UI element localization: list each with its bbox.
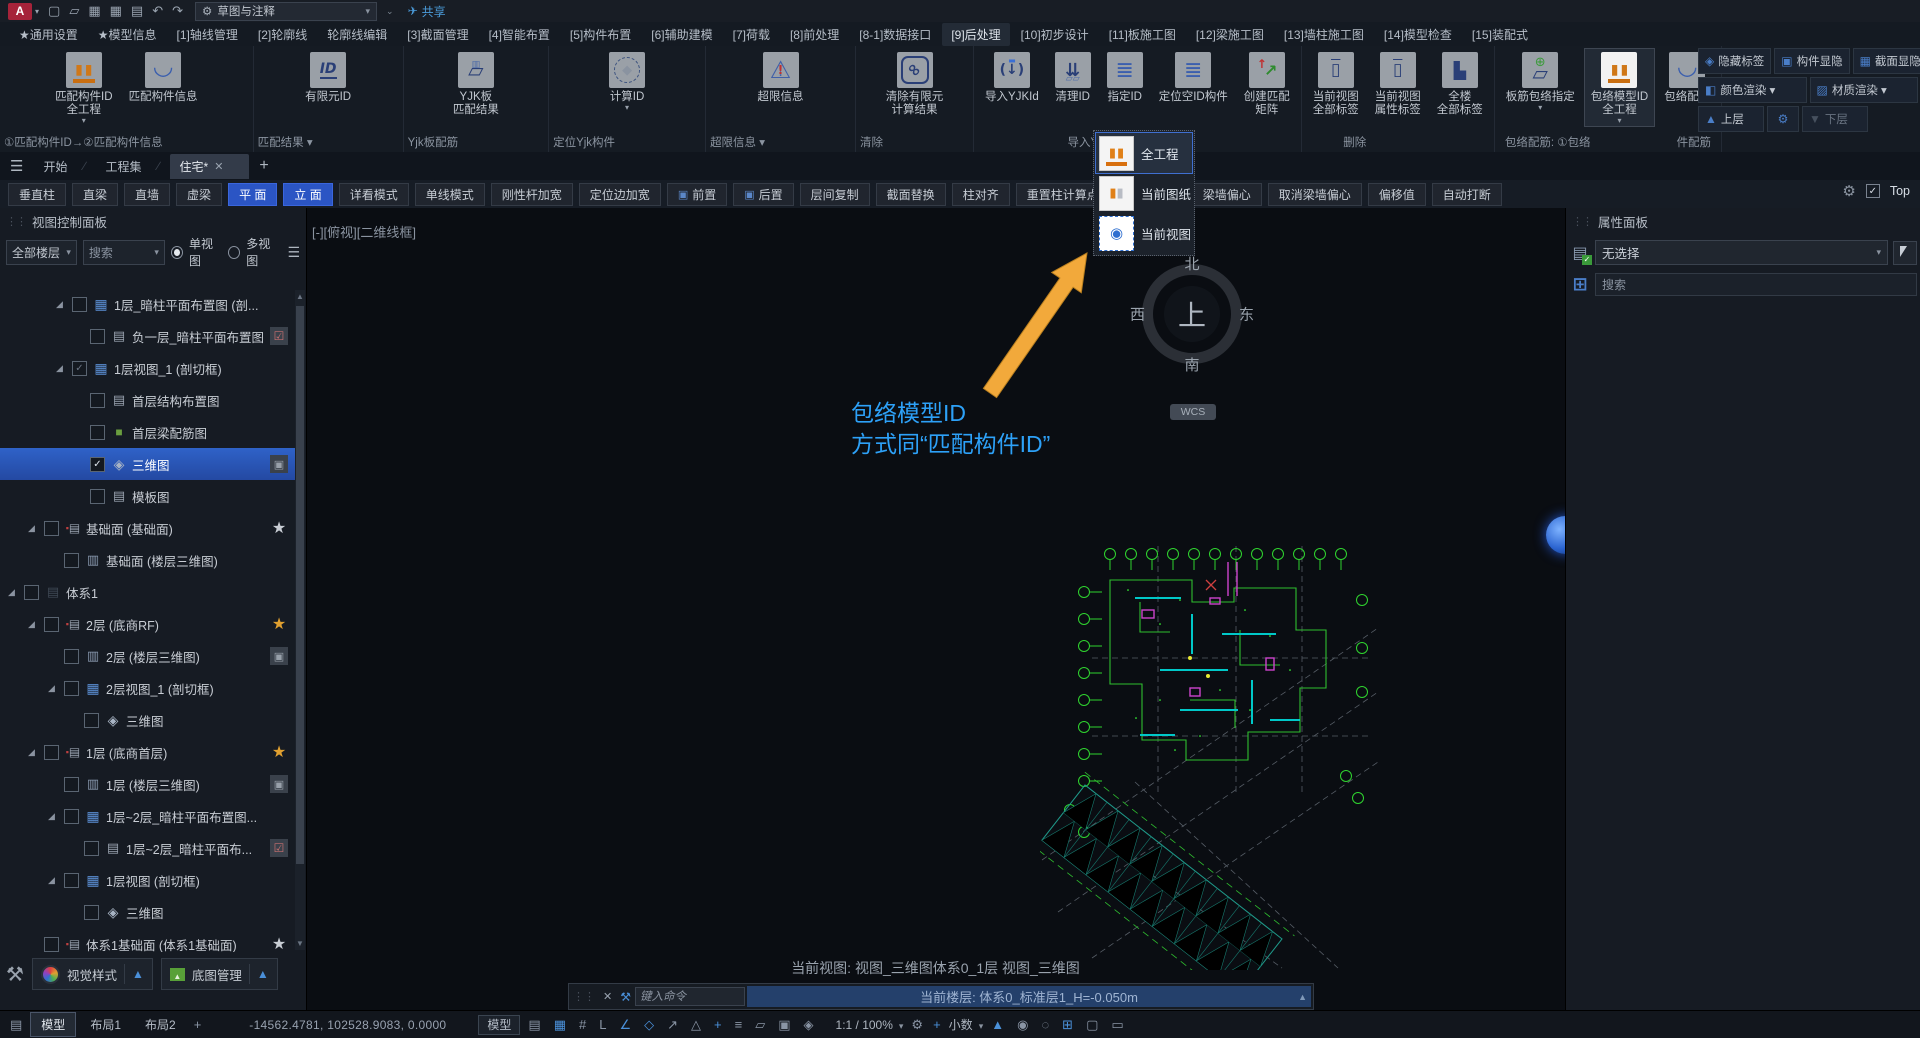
layout-tab[interactable]: 布局2 (135, 1013, 186, 1036)
paper-model-toggle-icon[interactable]: ▤ (526, 1017, 542, 1033)
ribbon-button-label: 定位空ID构件 (1159, 91, 1228, 104)
tree-item-badge[interactable] (270, 519, 288, 537)
tree-row[interactable]: ◢ 1层_暗柱平面布置图 (剖... (0, 288, 296, 320)
top-checkbox[interactable] (1866, 184, 1880, 198)
tree-item-icon (104, 840, 122, 856)
tree-row[interactable]: ◢ 1层~2层_暗柱平面布置图... (0, 800, 296, 832)
ribbon-button[interactable]: 匹配构件信息 ▾ (122, 48, 205, 106)
tree-menu-icon[interactable]: ☰ (287, 244, 300, 261)
isolate-objects-icon[interactable]: ◌ (1039, 1017, 1051, 1032)
tree-checkbox[interactable] (44, 745, 59, 760)
expander-icon[interactable]: ◢ (28, 523, 44, 534)
ribbon-button-icon (1055, 52, 1091, 88)
view-display-controls: ◈ 隐藏标签 ▣ 构件显隐 ▦ 截面显隐 ◧ 颜色渲染 ▾ ▨ 材质渲染 ▾ (1698, 48, 1918, 148)
toolbar-button[interactable]: 立 面 (283, 183, 332, 206)
ribbon-button[interactable]: 创建匹配 矩阵 ▾ (1237, 48, 1297, 119)
floor-filter-select[interactable]: 全部楼层 (6, 240, 77, 265)
panel-grip-icon[interactable]: ⋮⋮ (1572, 215, 1592, 228)
tree-row[interactable]: ◢ 首层结构布置图 (0, 384, 296, 416)
share-icon: ✈ (408, 4, 418, 18)
visual-style-expand-icon[interactable]: ▲ (132, 967, 144, 981)
toolbar-button[interactable]: 取消梁墙偏心 (1268, 183, 1362, 206)
dropdown-item[interactable]: 全工程 (1096, 133, 1192, 173)
navigation-compass[interactable]: 北 南 西 东 上 (1134, 256, 1250, 372)
ribbon-button[interactable]: 有限元ID ▾ (298, 48, 358, 106)
layer-nav-row: ▲ 上层 ⚙ ▼ 下层 (1698, 106, 1918, 132)
compass-top-label: 上 (1178, 294, 1206, 334)
commandbar-customize-icon[interactable]: ⚒ (616, 990, 635, 1004)
tree-item-badge[interactable] (270, 711, 288, 729)
ribbon-tab[interactable]: ★模型信息 (89, 23, 166, 46)
tree-checkbox[interactable] (64, 681, 79, 696)
up-arrow-icon: ▲ (1705, 112, 1717, 126)
ribbon-button-label: 当前视图 全部标签 (1313, 91, 1359, 117)
button-divider (124, 964, 125, 984)
polar-tracking-icon[interactable]: ∠ (617, 1017, 633, 1033)
ribbon-group: 当前视图 全部标签 ▾ 当前视图 属性标签 ▾ 全楼 全部标签 ▾ (1302, 46, 1495, 152)
share-label: 共享 (422, 3, 446, 20)
visual-style-button[interactable]: 视觉样式 ▲ (32, 958, 153, 990)
tree-item-icon (84, 552, 102, 568)
dropdown-item-label: 当前图纸 (1141, 184, 1191, 203)
document-tab[interactable]: 开始 ✕ (33, 154, 95, 179)
save-icon[interactable]: ▦ (88, 3, 100, 19)
tree-checkbox[interactable] (44, 521, 59, 536)
tree-item-badge[interactable] (270, 679, 288, 697)
customization-icon[interactable]: ▭ (1109, 1017, 1125, 1033)
tree-item-badge[interactable] (270, 871, 288, 889)
viewport-controls-label[interactable]: [-][俯视][二维线框] (312, 222, 416, 241)
workspace-collapse-icon[interactable]: ⌄ (386, 6, 394, 17)
plan-highlight-dots (1188, 656, 1210, 678)
ribbon-button[interactable]: 超限信息 ▾ (751, 48, 811, 106)
tree-item-label: 三维图 (126, 903, 164, 922)
tree-item-badge[interactable] (270, 935, 288, 952)
tree-checkbox[interactable] (72, 361, 87, 376)
ortho-mode-icon[interactable]: L (597, 1017, 608, 1032)
navigation-ball-icon[interactable] (1546, 516, 1565, 554)
ribbon-tab[interactable]: [9]后处理 (942, 23, 1009, 46)
tree-checkbox[interactable] (64, 553, 79, 568)
tree-checkbox[interactable] (44, 937, 59, 952)
ribbon-tab[interactable]: [6]辅助建模 (642, 23, 721, 46)
commandbar-close-icon[interactable]: ✕ (599, 990, 616, 1003)
tree-item-badge[interactable] (270, 775, 288, 793)
toolbar-button[interactable]: 刚性杆加宽 (491, 183, 573, 206)
new-layout-icon[interactable]: + (192, 1017, 204, 1032)
tree-row[interactable]: ◢ 1层 (楼层三维图) (0, 768, 296, 800)
scroll-up-icon[interactable]: ▲ (295, 292, 305, 301)
lower-layer-label: 下层 (1825, 111, 1848, 127)
tree-checkbox[interactable] (90, 457, 105, 472)
base-map-label: 底图管理 (192, 965, 242, 984)
ribbon-group-label: 包络配筋: ①包络 件配筋 (1499, 132, 1718, 152)
tree-row[interactable]: ◢ 负一层_暗柱平面布置图 (0, 320, 296, 352)
tree-checkbox[interactable] (64, 649, 79, 664)
units-value[interactable]: 小数 (949, 1016, 984, 1033)
dynamic-ucs-icon[interactable]: △ (689, 1017, 703, 1033)
layer-settings-button[interactable]: ⚙ (1767, 106, 1799, 132)
ribbon-button[interactable]: 匹配构件ID 全工程 ▾ (48, 48, 120, 127)
ribbon-button-dropdown-icon[interactable]: ▾ (1617, 117, 1621, 125)
tree-row[interactable]: ◢ 模板图 (0, 480, 296, 512)
tree-item-badge[interactable] (270, 903, 288, 921)
tab-close-icon[interactable]: ✕ (214, 160, 223, 173)
expander-icon[interactable]: ◢ (8, 587, 24, 598)
tree-search-placeholder: 搜索 (89, 244, 113, 261)
toolbar-button[interactable]: 层间复制 (800, 183, 870, 206)
dropdown-item[interactable]: 当前视图 (1096, 213, 1192, 253)
ribbon-group-buttons: 导入YJKId ▾ 清理ID ▾ 指定ID ▾ (978, 48, 1297, 132)
scrollbar-thumb[interactable] (296, 306, 304, 864)
save-as-icon[interactable]: ▦ (110, 3, 122, 19)
ribbon-tab[interactable]: ★通用设置 (10, 23, 87, 46)
ribbon-tab[interactable]: [11]板施工图 (1100, 23, 1185, 46)
toolbar-button[interactable]: 前置 (667, 183, 727, 206)
ribbon-tab-bar: ★通用设置★模型信息[1]轴线管理[2]轮廓线轮廓线编辑[3]截面管理[4]智能… (0, 22, 1920, 46)
toolbar-button[interactable]: 柱对齐 (952, 183, 1010, 206)
toolbar-button[interactable]: 自动打断 (1432, 183, 1502, 206)
tree-checkbox[interactable] (90, 489, 105, 504)
open-folder-icon[interactable]: ▱ (69, 3, 79, 19)
commandbar-grip-icon[interactable]: ⋮⋮ (569, 990, 599, 1003)
ribbon-tab[interactable]: [7]荷载 (724, 23, 779, 46)
tree-row[interactable]: ◢ 2层 (楼层三维图) (0, 640, 296, 672)
right-panel-header[interactable]: ⋮⋮ 属性面板 (1566, 208, 1920, 234)
toolbar-button[interactable]: 垂直柱 (8, 183, 66, 206)
ribbon-tab[interactable]: [4]智能布置 (480, 23, 559, 46)
tree-row[interactable]: ◢ 三维图 (0, 448, 296, 480)
layout-tab[interactable]: 布局1 (80, 1013, 131, 1036)
base-map-expand-icon[interactable]: ▲ (257, 967, 269, 981)
ribbon-group-label-text: Yjk板配筋 (408, 134, 458, 150)
tree-row[interactable]: ◢ 2层视图_1 (剖切框) (0, 672, 296, 704)
statusbar-menu-icon[interactable]: ▤ (8, 1017, 24, 1033)
tree-item-badge[interactable] (270, 647, 288, 665)
transparency-icon[interactable]: ▱ (753, 1017, 767, 1033)
tree-row[interactable]: ◢ 三维图 (0, 896, 296, 928)
ribbon-button-label: 超限信息 (758, 91, 804, 104)
ribbon-tab[interactable]: [15]装配式 (1463, 23, 1537, 46)
tree-item-badge[interactable] (270, 391, 288, 409)
ribbon-group-buttons: YJK板 匹配结果 ▾ (408, 48, 544, 132)
tree-checkbox[interactable] (84, 841, 99, 856)
snap-tracking-icon[interactable]: ↗ (665, 1017, 680, 1033)
tree-item-icon (84, 872, 102, 889)
annotation-visibility-icon[interactable]: ▲ (989, 1017, 1006, 1032)
current-floor-status[interactable]: 当前楼层: 体系0_标准层1_H=-0.050m (747, 986, 1311, 1007)
left-panel-header[interactable]: ⋮⋮ 视图控制面板 (0, 208, 306, 234)
tree-row[interactable]: ◢ 三维图 (0, 704, 296, 736)
ribbon-button-dropdown-icon[interactable]: ▾ (82, 117, 86, 125)
toolbar-settings-gear-icon[interactable]: ⚙ (1842, 182, 1855, 200)
view-control-label: 截面显隐 (1875, 53, 1920, 69)
tree-item-badge[interactable] (270, 359, 288, 377)
tree-row[interactable]: ◢ 体系1基础面 (体系1基础面) (0, 928, 296, 952)
ribbon-group-buttons: 板筋包络指定 ▾ 包络模型ID 全工程 ▾ 包络配筋 ▾ (1499, 48, 1718, 132)
expander-icon[interactable]: ◢ (28, 619, 44, 630)
left-panel-title: 视图控制面板 (32, 212, 107, 231)
tree-item-badge[interactable] (270, 583, 288, 601)
ribbon-button-label: YJK板 匹配结果 (453, 91, 499, 117)
toolbar-button[interactable]: 偏移值 (1368, 183, 1426, 206)
tree-item-badge[interactable] (270, 487, 288, 505)
toolbar-button[interactable]: 虚梁 (176, 183, 222, 206)
toolbar-button[interactable]: 直梁 (72, 183, 118, 206)
clean-screen-icon[interactable]: ▢ (1084, 1017, 1100, 1033)
canvas-annotation: 包络模型ID 方式同“匹配构件ID” (851, 398, 1050, 460)
dropdown-item[interactable]: 当前图纸 (1096, 173, 1192, 213)
tree-checkbox[interactable] (64, 873, 79, 888)
new-tab-button[interactable]: + (259, 157, 268, 175)
plan-walls (1135, 598, 1300, 735)
ribbon-group-label-text: 包络配筋: ①包络 (1505, 134, 1591, 150)
ribbon-button-icon (1522, 52, 1558, 88)
tree-item-label: 负一层_暗柱平面布置图 (132, 327, 264, 346)
tree-row[interactable]: ◢ 1层~2层_暗柱平面布... (0, 832, 296, 864)
workspace-label: 草图与注释 (217, 3, 359, 19)
visual-style-label: 视觉样式 (67, 965, 117, 984)
ribbon-group-label-text: 超限信息 ▾ (710, 134, 765, 150)
panel-grip-icon[interactable]: ⋮⋮ (6, 215, 26, 228)
compass-north[interactable]: 北 (1184, 253, 1199, 274)
model-space-button[interactable]: 模型 (478, 1015, 520, 1035)
ribbon-tab[interactable]: [13]墙柱施工图 (1275, 23, 1373, 46)
ribbon-tab[interactable]: [8]前处理 (781, 23, 848, 46)
command-input[interactable] (635, 987, 745, 1006)
tree-item-badge[interactable] (270, 455, 288, 473)
annotation-monitor-icon[interactable]: ◉ (1015, 1017, 1030, 1033)
ribbon-tab[interactable]: [8-1]数据接口 (850, 23, 940, 46)
snap-mode-icon[interactable]: # (577, 1017, 588, 1032)
render-mode-button[interactable]: ▨ 材质渲染 ▾ (1810, 77, 1919, 103)
compass-east[interactable]: 东 (1239, 304, 1254, 325)
tree-item-icon (64, 521, 82, 535)
annotation-scale-value[interactable]: 1:1 / 100% (836, 1018, 904, 1032)
lower-layer-button[interactable]: ▼ 下层 (1802, 106, 1868, 132)
ribbon-tab[interactable]: [2]轮廓线 (249, 23, 316, 46)
toolbar-button[interactable]: 详看模式 (339, 183, 409, 206)
ribbon-tab[interactable]: [12]梁施工图 (1187, 23, 1273, 46)
property-grid-icon[interactable] (1570, 275, 1590, 295)
tree-scrollbar[interactable]: ▲ ▼ (295, 290, 305, 950)
right-panel-title: 属性面板 (1598, 212, 1648, 231)
expander-icon[interactable]: ◢ (56, 363, 72, 374)
ribbon-button-icon (310, 52, 346, 88)
left-panel-footer: ⚒ 视觉样式 ▲ ▲ 底图管理 ▲ (0, 952, 312, 996)
ribbon-button[interactable]: 包络模型ID 全工程 ▾ (1584, 48, 1656, 127)
ribbon-button[interactable]: 当前视图 全部标签 ▾ (1306, 48, 1366, 119)
tree-checkbox[interactable] (84, 713, 99, 728)
tree-item-badge[interactable] (270, 423, 288, 441)
expander-icon[interactable]: ◢ (28, 747, 44, 758)
hardware-acceleration-icon[interactable]: ⊞ (1060, 1017, 1075, 1033)
ribbon-tab[interactable]: 轮廓线编辑 (318, 23, 396, 46)
tree-row[interactable]: ◢ 2层 (底商RF) (0, 608, 296, 640)
ribbon-button[interactable]: 当前视图 属性标签 ▾ (1368, 48, 1428, 119)
compass-west[interactable]: 西 (1130, 304, 1145, 325)
undo-icon[interactable]: ↶ (152, 3, 163, 19)
ribbon-group-label-text: 匹配结果 ▾ (258, 134, 313, 150)
expander-icon[interactable]: ◢ (48, 875, 64, 886)
tree-item-badge[interactable] (270, 551, 288, 569)
ribbon-tab[interactable]: [1]轴线管理 (168, 23, 247, 46)
view-control-button[interactable]: ▦ 截面显隐 (1853, 48, 1920, 74)
layout-tabs: 模型布局1布局2 (30, 1012, 185, 1037)
ribbon-button-dropdown-icon[interactable]: ▾ (625, 104, 629, 112)
layout-tab[interactable]: 模型 (30, 1012, 76, 1037)
drawing-canvas[interactable]: [-][俯视][二维线框] 北 南 西 东 上 WCS 包络模型ID 方式同“匹… (306, 208, 1565, 1010)
tree-item-badge[interactable] (270, 327, 288, 345)
ribbon-group: YJK板 匹配结果 ▾ Yjk板配筋 (404, 46, 549, 152)
view-control-panel: ⋮⋮ 视图控制面板 全部楼层 搜索 单视图 多视图 ☰ ◢ 1层_暗柱平面布置图… (0, 208, 307, 1010)
ribbon-button-label: 创建匹配 矩阵 (1244, 91, 1290, 117)
ribbon-button[interactable]: YJK板 匹配结果 ▾ (446, 48, 506, 119)
tree-item-icon (64, 937, 82, 951)
pick-object-icon[interactable] (1893, 241, 1917, 265)
ribbon-button[interactable]: 板筋包络指定 ▾ (1499, 48, 1582, 114)
scroll-down-icon[interactable]: ▼ (295, 939, 305, 948)
multi-view-radio[interactable] (228, 246, 240, 259)
app-logo[interactable]: A (8, 3, 32, 20)
command-line-bar[interactable]: ⋮⋮ ✕ ⚒ 当前楼层: 体系0_标准层1_H=-0.050m (568, 983, 1314, 1010)
dropdown-item-icon (1099, 176, 1134, 211)
expander-icon[interactable]: ◢ (48, 811, 64, 822)
view-control-label: 隐藏标签 (1718, 53, 1764, 69)
tree-search-select[interactable]: 搜索 (83, 240, 165, 265)
object-snap-icon[interactable]: ◇ (642, 1017, 656, 1033)
ribbon-button[interactable]: 指定ID ▾ (1100, 48, 1150, 106)
tree-checkbox[interactable] (64, 809, 79, 824)
dynamic-input-icon[interactable]: + (712, 1017, 724, 1032)
3d-osnap-icon[interactable]: ◈ (802, 1017, 816, 1033)
ribbon-tab[interactable]: [14]模型检查 (1375, 23, 1461, 46)
base-map-button[interactable]: ▲ 底图管理 ▲ (161, 958, 278, 990)
toolbar-button[interactable]: 平 面 (228, 183, 277, 206)
scale-gear-icon[interactable]: ⚙ (909, 1017, 925, 1033)
toolbar-button[interactable]: 直墙 (124, 183, 170, 206)
share-button[interactable]: ✈ 共享 (408, 3, 446, 20)
ribbon-button-icon (1107, 52, 1143, 88)
properties-panel: ⋮⋮ 属性面板 无选择 (1565, 208, 1920, 1010)
ribbon-button-label: 指定ID (1107, 91, 1142, 104)
ribbon-button[interactable]: 清理ID ▾ (1048, 48, 1098, 106)
tree-item-badge[interactable] (270, 807, 288, 825)
new-file-icon[interactable]: ▢ (48, 3, 60, 19)
selection-cycling-icon[interactable]: ▣ (776, 1017, 792, 1033)
tree-row[interactable]: ◢ 基础面 (基础面) (0, 512, 296, 544)
tree-item-label: 1层视图_1 (剖切框) (114, 359, 222, 378)
tree-item-badge[interactable] (270, 743, 288, 761)
tree-checkbox[interactable] (90, 393, 105, 408)
dropdown-item-icon (1099, 136, 1134, 171)
document-tab[interactable]: 工程集 ✕ (95, 154, 169, 179)
ribbon-group-buttons: 清除有限元 计算结果 ▾ (860, 48, 969, 132)
render-mode-button[interactable]: ◧ 颜色渲染 ▾ (1698, 77, 1807, 103)
statusbar-right-icons: ▲◉◌⊞▢▭ (989, 1017, 1125, 1033)
ribbon-group-buttons: 匹配构件ID 全工程 ▾ 匹配构件信息 ▾ (4, 48, 249, 132)
ribbon-button[interactable]: 清除有限元 计算结果 ▾ (879, 48, 951, 119)
tree-checkbox[interactable] (64, 777, 79, 792)
ribbon-button-dropdown-icon[interactable]: ▾ (1538, 104, 1542, 112)
view-control-button[interactable]: ◈ 隐藏标签 (1698, 48, 1771, 74)
tree-checkbox[interactable] (90, 425, 105, 440)
grid-display-icon[interactable]: ▦ (552, 1017, 568, 1033)
document-tab[interactable]: 住宅* ✕ (170, 154, 250, 179)
material-render-icon: ▨ (1817, 83, 1828, 97)
ribbon-button[interactable]: 计算ID ▾ (602, 48, 652, 114)
tools-icon[interactable]: ⚒ (6, 962, 24, 987)
expander-icon[interactable]: ◢ (48, 683, 64, 694)
lineweight-icon[interactable]: ≡ (733, 1017, 745, 1032)
redo-icon[interactable]: ↷ (172, 3, 183, 19)
tree-checkbox[interactable] (72, 297, 87, 312)
tree-row[interactable]: ◢ 首层梁配筋图 (0, 416, 296, 448)
expander-icon[interactable]: ◢ (56, 299, 72, 310)
toolbar-button[interactable]: 梁墙偏心 (1192, 183, 1262, 206)
tree-checkbox[interactable] (84, 905, 99, 920)
hamburger-menu-icon[interactable]: ☰ (10, 157, 23, 175)
tree-row[interactable]: ◢ 1层视图_1 (剖切框) (0, 352, 296, 384)
workspace-selector[interactable]: ⚙ 草图与注释 (195, 2, 377, 21)
print-icon[interactable]: ▤ (131, 3, 143, 19)
view-control-button[interactable]: ▣ 构件显隐 (1774, 48, 1849, 74)
tree-item-icon (92, 360, 110, 377)
ribbon-tab[interactable]: [5]构件布置 (561, 23, 640, 46)
compass-south[interactable]: 南 (1184, 354, 1199, 375)
axis-grid-lines (1042, 546, 1378, 968)
ribbon-group-label: 匹配结果 ▾ (258, 132, 399, 152)
ribbon-group-label-text: 删除 (1343, 134, 1366, 150)
ribbon-button[interactable]: 全楼 全部标签 ▾ (1430, 48, 1490, 119)
property-search-input[interactable] (1595, 273, 1917, 296)
tree-checkbox[interactable] (44, 617, 59, 632)
quick-access-toolbar: ▢▱▦▦▤↶↷ (39, 3, 183, 19)
ribbon-group-label: Yjk板配筋 (408, 132, 544, 152)
upper-layer-button[interactable]: ▲ 上层 (1698, 106, 1764, 132)
selection-list-icon[interactable] (1570, 243, 1590, 263)
ribbon-tab[interactable]: [3]截面管理 (398, 23, 477, 46)
tree-row[interactable]: ◢ 体系1 (0, 576, 296, 608)
tree-item-badge[interactable] (270, 615, 288, 633)
single-view-radio[interactable] (171, 246, 183, 259)
tree-checkbox[interactable] (24, 585, 39, 600)
ribbon-group: 板筋包络指定 ▾ 包络模型ID 全工程 ▾ 包络配筋 ▾ (1495, 46, 1723, 152)
toolbar-button[interactable]: 单线模式 (415, 183, 485, 206)
compass-top-face[interactable]: 上 (1164, 286, 1220, 342)
tree-row[interactable]: ◢ 1层 (底商首层) (0, 736, 296, 768)
wcs-badge[interactable]: WCS (1170, 404, 1216, 420)
add-scale-icon[interactable]: + (931, 1017, 943, 1032)
tree-item-label: 模板图 (132, 487, 170, 506)
ribbon-tab[interactable]: [10]初步设计 (1012, 23, 1098, 46)
tree-row[interactable]: ◢ 1层视图 (剖切框) (0, 864, 296, 896)
down-arrow-icon: ▼ (1809, 112, 1821, 126)
left-panel-controls: 全部楼层 搜索 单视图 多视图 ☰ (6, 238, 300, 266)
ribbon-button[interactable]: 定位空ID构件 ▾ (1152, 48, 1235, 106)
tree-checkbox[interactable] (90, 329, 105, 344)
ribbon-button[interactable]: 导入YJKId ▾ (978, 48, 1046, 106)
toolbar-button[interactable]: 后置 (733, 183, 793, 206)
toolbar-button[interactable]: 定位边加宽 (579, 183, 661, 206)
tree-row[interactable]: ◢ 基础面 (楼层三维图) (0, 544, 296, 576)
toolbar-button[interactable]: 截面替换 (876, 183, 946, 206)
tree-item-icon (110, 328, 128, 344)
tree-item-icon (84, 680, 102, 697)
tree-item-badge[interactable] (270, 839, 288, 857)
tree-item-badge[interactable] (270, 295, 288, 313)
selection-dropdown[interactable]: 无选择 (1595, 240, 1888, 265)
